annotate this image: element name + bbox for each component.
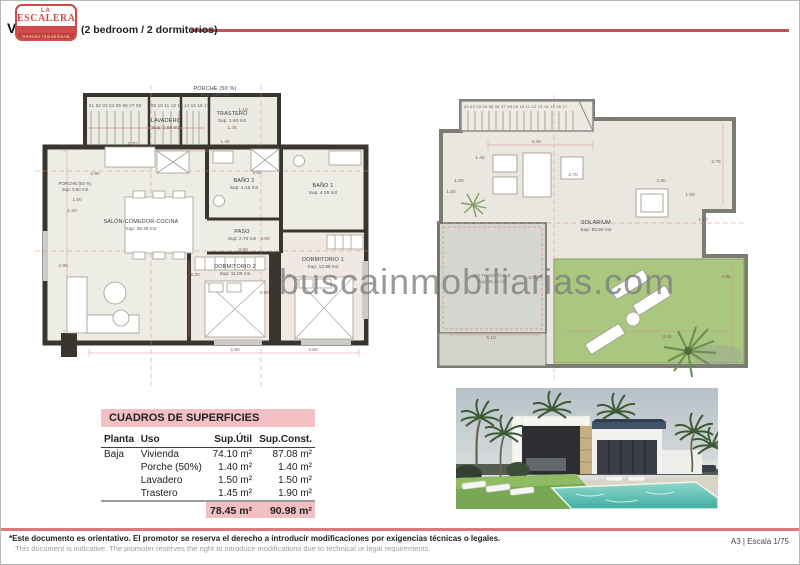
room-dormitorio2-name: DORMITORIO 2	[214, 264, 256, 270]
disclaimer-es: *Este documento es orientativo. El promo…	[9, 534, 500, 543]
room-bano2-sup: Sup: 4.15 m2	[230, 185, 259, 191]
dim-label: 4.30	[127, 141, 137, 147]
table-row: Baja Vivienda 74.10 m² 87.08 m²	[101, 448, 315, 462]
plan-sheet-page: VILLA A (2 bedroom / 2 dormitorios) LA E…	[0, 0, 800, 565]
cell-util: 74.10 m²	[206, 448, 255, 462]
sheet-scale-info: A3 | Escala 1/75	[731, 537, 789, 546]
disclaimer-en: This document is indicative. The promote…	[15, 544, 431, 553]
table-header-util: Sup.Útil	[206, 432, 255, 448]
room-porche-top-sup: Sup: 3.50 m2	[201, 92, 230, 98]
room-porche-left-sup: Sup: 0.90 m2	[62, 187, 89, 192]
cell-planta	[101, 487, 138, 501]
table-row: Trastero 1.45 m² 1.90 m²	[101, 487, 315, 501]
cell-uso: Vivienda	[138, 448, 206, 462]
cell-util: 1.40 m²	[206, 461, 255, 474]
dim-label: 5.20	[190, 272, 200, 278]
dim-label: 1.00	[454, 178, 464, 184]
dim-label: 2.90	[90, 171, 100, 177]
cell-empty	[101, 501, 138, 518]
dim-label: 1.50	[446, 189, 456, 195]
logo-tagline: Gestión Inmobiliaria	[17, 33, 75, 41]
dim-label: 3.35	[662, 334, 672, 340]
total-util: 78.45 m²	[206, 501, 255, 518]
room-bano1-sup: Sup: 4.05 m2	[309, 190, 338, 196]
room-dormitorio2-sup: Sup: 11.00 m2	[220, 271, 251, 277]
dim-label: 2.70	[568, 172, 578, 178]
surface-table-grid: Planta Uso Sup.Útil Sup.Const. Baja Vivi…	[101, 432, 315, 518]
roof-plan-stairs: 01 02 03 04 05 06 07 08 09 10 11 12 13 1…	[461, 101, 593, 131]
table-header-row: Planta Uso Sup.Útil Sup.Const.	[101, 432, 315, 448]
cell-planta: Baja	[101, 448, 138, 462]
roof-stair-numbers: 01 02 03 04 05 06 07 08 09 10 11 12 13 1…	[464, 105, 567, 109]
watermark-text: buscainmobiliarias.com	[279, 261, 675, 303]
surface-table: CUADROS DE SUPERFICIES Planta Uso Sup.Út…	[101, 409, 315, 518]
dim-label: 4.95	[58, 263, 68, 269]
stair-numbers-3: 14 15 16 17	[184, 103, 210, 108]
dim-label: 1.20	[67, 208, 77, 214]
room-paso-sup: Sup: 2.70 m2	[228, 236, 257, 242]
dim-label: 3.00	[238, 247, 248, 253]
cell-planta	[101, 461, 138, 474]
dim-label: 4.28	[531, 139, 541, 145]
room-porche-left-name: PORCHE (50 %)	[59, 181, 92, 186]
dim-label: 3.90	[259, 290, 269, 296]
dim-label: 1.67	[605, 117, 615, 123]
cell-planta	[101, 474, 138, 487]
ground-floor-plan: 01 02 03 04 05 06 07 08 09 10 11 12 13 1…	[29, 81, 374, 391]
dim-label: 1.40	[475, 155, 485, 161]
cell-empty	[138, 501, 206, 518]
room-solarium-sup: Sup: 53.50 m2	[580, 227, 612, 233]
surface-table-title: CUADROS DE SUPERFICIES	[101, 409, 315, 427]
room-trastero-sup: Sup: 1.90 m2	[218, 118, 247, 124]
villa-render-image	[456, 388, 718, 509]
room-lavadero-sup: Sup: 1.50 m2	[152, 125, 181, 131]
cell-util: 1.45 m²	[206, 487, 255, 501]
stair-numbers-2: 09 10 11 12 13	[151, 103, 183, 108]
table-row: Porche (50%) 1.40 m² 1.40 m²	[101, 461, 315, 474]
cell-const: 87.08 m²	[255, 448, 315, 462]
dim-label: 1.19	[238, 107, 248, 113]
dim-label: 1.40	[220, 139, 230, 145]
room-paso-name: PASO	[234, 229, 249, 235]
dim-label: 2.75	[711, 159, 721, 165]
table-header-const: Sup.Const.	[255, 432, 315, 448]
header-rule	[191, 29, 789, 32]
villa-title-suffix: (2 bedroom / 2 dormitorios)	[81, 24, 218, 36]
footer-rule	[1, 528, 800, 531]
dim-label: 2.90	[230, 347, 240, 353]
room-salon-name: SALÓN-COMEDOR-COCINA	[104, 218, 179, 225]
cell-util: 1.50 m²	[206, 474, 255, 487]
cell-uso: Porche (50%)	[138, 461, 206, 474]
dim-label: 1.10	[698, 217, 708, 223]
room-lavadero-name: LAVADERO	[151, 118, 181, 124]
dim-label: 5.10	[486, 335, 496, 341]
room-solarium-name: SOLARIUM	[581, 220, 611, 226]
dim-label: 1.50	[685, 192, 695, 198]
cell-const: 1.90 m²	[255, 487, 315, 501]
dim-label: 1.50	[72, 197, 82, 203]
cell-const: 1.40 m²	[255, 461, 315, 474]
table-header-uso: Uso	[138, 432, 206, 448]
dim-label: 1.45	[227, 125, 237, 131]
table-header-planta: Planta	[101, 432, 138, 448]
room-salon-sup: Sup: 38.25 m2	[125, 226, 157, 232]
table-row: Lavadero 1.50 m² 1.50 m²	[101, 474, 315, 487]
stair-numbers-1: 01 02 03 04 05 06 07 08	[89, 103, 142, 108]
dim-label: 4.85	[721, 274, 731, 280]
room-bano2-name: BAÑO 2	[234, 177, 255, 184]
logo-red-band	[17, 26, 75, 33]
room-bano1-name: BAÑO 1	[313, 182, 334, 189]
cell-const: 1.50 m²	[255, 474, 315, 487]
total-const: 90.98 m²	[255, 501, 315, 518]
cell-uso: Lavadero	[138, 474, 206, 487]
cell-uso: Trastero	[138, 487, 206, 501]
roof-plan-walls	[439, 101, 746, 366]
dim-label: 2.60	[252, 170, 262, 176]
dim-label: 3.90	[656, 178, 666, 184]
logo-name-text: ESCALERA	[17, 14, 75, 24]
dim-label: 2.80	[308, 347, 318, 353]
room-porche-top-name: PORCHE (50 %)	[193, 86, 236, 92]
table-total-row: 78.45 m² 90.98 m²	[101, 501, 315, 518]
agency-logo: LA ESCALERA Gestión Inmobiliaria	[15, 4, 77, 41]
dim-label: 0.90	[260, 236, 270, 242]
roof-plan: 01 02 03 04 05 06 07 08 09 10 11 12 13 1…	[433, 93, 748, 383]
